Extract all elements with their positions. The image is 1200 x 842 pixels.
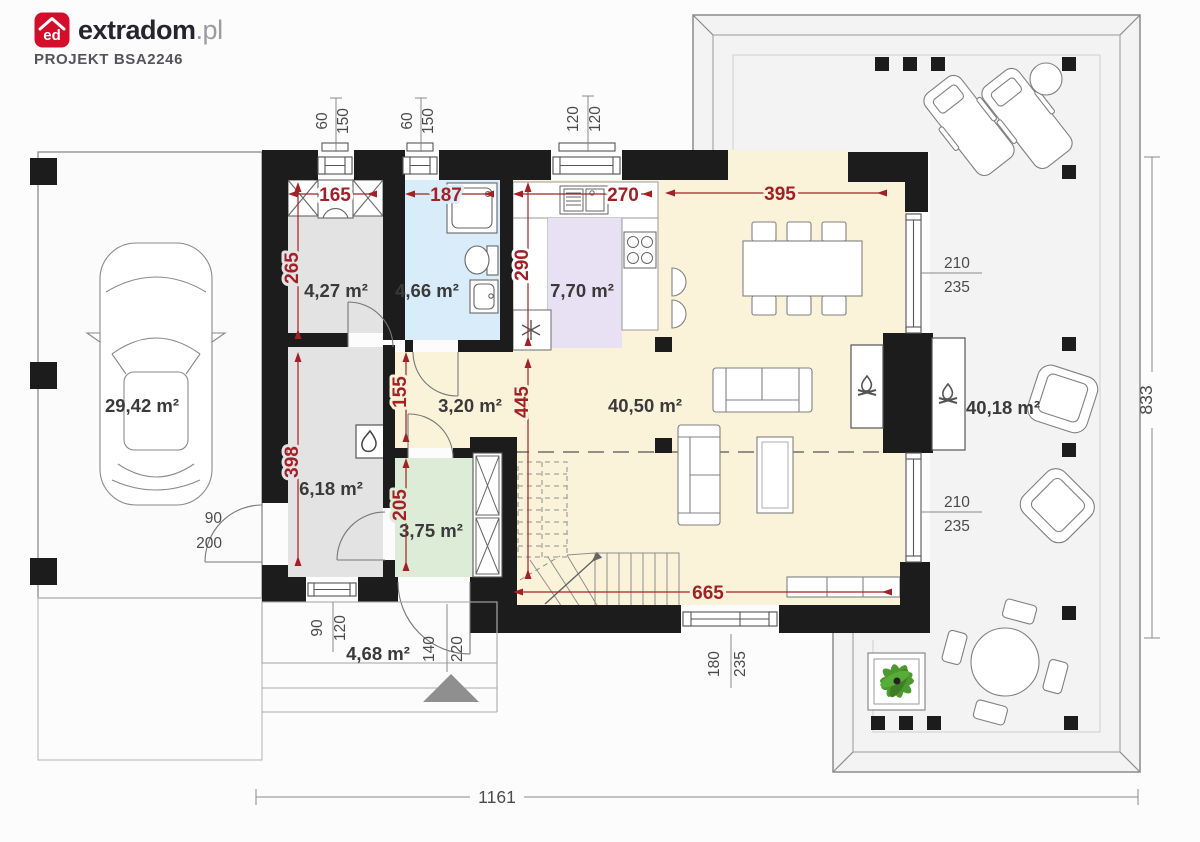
built-in-closet xyxy=(473,453,502,577)
dim-porch-win-w: 90 xyxy=(309,619,326,637)
room-label-terrace: 40,18 m² xyxy=(966,397,1040,418)
plant xyxy=(868,653,925,710)
window-icon xyxy=(553,143,620,174)
dim-right-win1-w: 210 xyxy=(944,255,970,272)
dim-overall-width: 1161 xyxy=(478,787,516,807)
column xyxy=(655,438,672,453)
column xyxy=(655,337,672,352)
window-icon xyxy=(683,612,777,626)
dim-bottom-win-w: 180 xyxy=(706,651,723,677)
room-label-bathroom: 4,66 m² xyxy=(395,280,459,301)
car xyxy=(87,243,225,505)
window-icon xyxy=(906,214,921,333)
dim-top-win1-h: 150 xyxy=(335,108,352,134)
dim-wardrobe-height: 265 xyxy=(282,252,303,284)
garage-carport: 29,42 m² xyxy=(30,152,262,760)
room-label-vestibule: 3,75 m² xyxy=(399,520,463,541)
dim-hall-height: 155 xyxy=(390,376,411,408)
dim-kitchen-height: 290 xyxy=(512,249,533,281)
fridge xyxy=(513,310,551,350)
window-icon xyxy=(318,143,352,174)
sofa xyxy=(713,368,812,412)
driveway xyxy=(38,598,262,760)
room-label-wardrobe: 4,27 m² xyxy=(304,280,368,301)
room-label-garage: 29,42 m² xyxy=(105,395,179,416)
dim-top-win1-w: 60 xyxy=(314,112,331,130)
dim-vestibule-height: 205 xyxy=(390,489,411,521)
fireplace-chimney xyxy=(883,333,933,453)
room-label-utility: 6,18 m² xyxy=(299,478,363,499)
dim-top-win2-h: 150 xyxy=(420,108,437,134)
dim-living-height: 445 xyxy=(512,386,533,418)
window-icon xyxy=(308,583,356,596)
window-icon xyxy=(906,453,921,562)
dining-set xyxy=(743,222,862,315)
dim-right-win1-h: 235 xyxy=(944,279,970,296)
dim-top-win2-w: 60 xyxy=(399,112,416,130)
dim-right-win2-h: 235 xyxy=(944,518,970,535)
floor-plan-page: ed extradom.pl PROJEKT BSA2246 xyxy=(0,0,1200,842)
boiler xyxy=(356,425,385,458)
side-table xyxy=(1030,63,1062,95)
dim-entry-door-h: 220 xyxy=(449,636,466,662)
dim-garage-door-w: 90 xyxy=(205,510,223,527)
dim-bathroom-width: 187 xyxy=(430,185,462,206)
dim-overall-depth: 833 xyxy=(1136,385,1156,414)
dim-living-width: 395 xyxy=(764,184,796,205)
room-label-porch: 4,68 m² xyxy=(346,643,410,664)
dim-porch-win-h: 120 xyxy=(332,615,349,641)
dim-garage-door-h: 200 xyxy=(196,535,222,552)
floor-plan-canvas: 29,42 m² xyxy=(0,0,1200,842)
room-label-hall: 3,20 m² xyxy=(438,395,502,416)
coffee-table xyxy=(757,437,793,513)
kitchen-sink xyxy=(560,186,608,214)
room-label-kitchen: 7,70 m² xyxy=(550,280,614,301)
dim-entry-door-w: 140 xyxy=(421,636,438,662)
dim-top-win3-h: 120 xyxy=(587,106,604,132)
toilet xyxy=(465,246,498,275)
terrace-fireplace xyxy=(932,338,965,450)
dim-top-win3-w: 120 xyxy=(565,106,582,132)
dim-living-width2: 665 xyxy=(692,583,724,604)
room-kitchen xyxy=(513,182,658,350)
dim-wardrobe-width: 165 xyxy=(319,185,351,206)
dim-bottom-win-h: 235 xyxy=(732,651,749,677)
couch xyxy=(678,425,720,525)
dim-right-win2-w: 210 xyxy=(944,494,970,511)
dim-kitchen-width: 270 xyxy=(607,185,639,206)
room-floors xyxy=(288,150,908,605)
dim-utility-height: 398 xyxy=(282,446,303,478)
room-label-living: 40,50 m² xyxy=(608,395,682,416)
sideboard xyxy=(787,577,900,597)
washbasin xyxy=(470,280,498,313)
window-icon xyxy=(403,143,437,174)
